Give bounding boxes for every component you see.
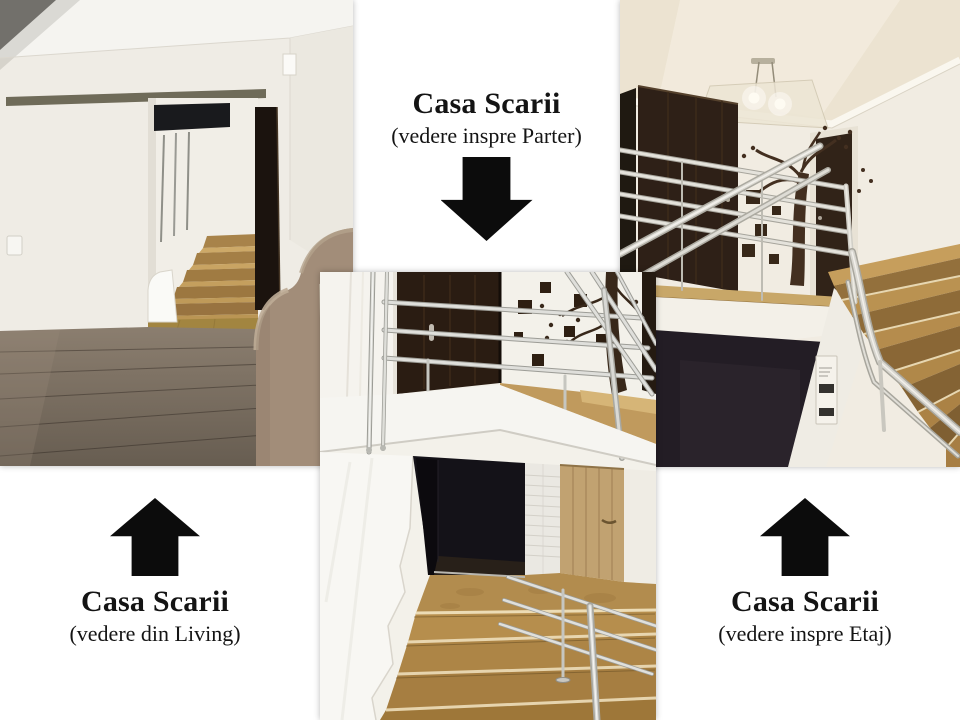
wooden-wardrobe [560, 465, 624, 582]
caption-title: Casa Scarii [665, 584, 945, 620]
dark-door [255, 107, 280, 310]
caption-subtitle: (vedere din Living) [15, 620, 295, 647]
caption-etaj: Casa Scarii (vedere inspre Etaj) [665, 498, 945, 647]
down-arrow-icon [441, 157, 533, 241]
living-view-illustration [0, 0, 353, 466]
etaj-view-illustration [620, 0, 960, 467]
up-arrow-icon [110, 498, 200, 576]
caption-subtitle: (vedere inspre Etaj) [665, 620, 945, 647]
photo-living-view [0, 0, 353, 466]
parter-view-illustration [320, 272, 656, 720]
caption-parter: Casa Scarii (vedere inspre Parter) [353, 86, 620, 241]
stairwell-doorway [148, 98, 258, 333]
caption-title: Casa Scarii [353, 86, 620, 122]
photo-parter-view [320, 272, 656, 720]
dark-hallway [413, 456, 525, 575]
light-switch [7, 236, 22, 255]
descending-steps [380, 610, 656, 720]
up-arrow-icon [760, 498, 850, 576]
photo-etaj-view [620, 0, 960, 467]
collage: Casa Scarii (vedere inspre Parter) Casa … [0, 0, 960, 720]
caption-title: Casa Scarii [15, 584, 295, 620]
caption-subtitle: (vedere inspre Parter) [353, 122, 620, 149]
caption-living: Casa Scarii (vedere din Living) [15, 498, 295, 647]
tiled-wall [525, 463, 560, 575]
